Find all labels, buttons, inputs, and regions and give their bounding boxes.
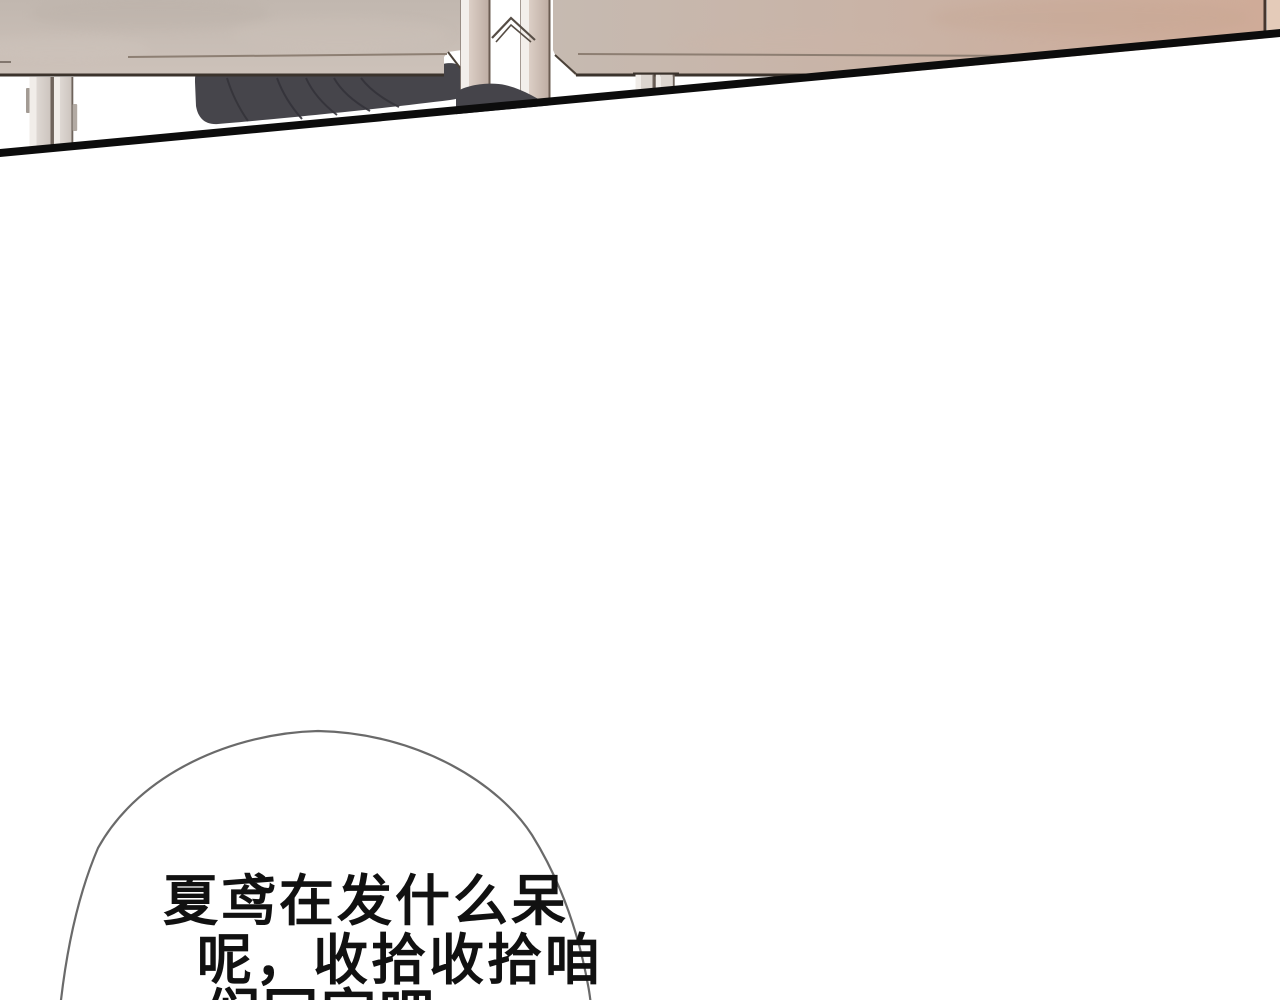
comic-panel-scene xyxy=(0,0,1280,1000)
speech-text-line2: 呢，收拾收拾咱 xyxy=(197,933,603,988)
legs-left-tab-inner xyxy=(73,104,78,131)
speech-text-line3-clipped: 们回家吧 xyxy=(205,988,437,1000)
far-right-divider-line xyxy=(1264,0,1267,33)
desk-left xyxy=(0,0,464,76)
far-right-surface xyxy=(1267,0,1280,31)
leg1-edge xyxy=(51,77,53,149)
leg1-body xyxy=(37,77,51,149)
pole-right-body xyxy=(529,0,549,112)
legs-left-gap xyxy=(52,77,54,149)
speech-text-line1: 夏鸢在发什么呆 xyxy=(163,874,569,929)
legs-right-cap xyxy=(633,73,679,75)
legs-left-tab-outer xyxy=(26,88,30,113)
leg2-body xyxy=(60,77,72,149)
comic-page: 夏鸢在发什么呆 呢，收拾收拾咱 们回家吧 xyxy=(0,0,1280,1000)
pole-right-edge xyxy=(549,0,551,112)
desk-left-legs xyxy=(26,75,77,150)
leg2-highlight xyxy=(54,77,60,149)
leg1-highlight xyxy=(30,77,37,149)
legs-left-cap xyxy=(28,75,75,77)
far-right-panel xyxy=(1264,0,1280,33)
